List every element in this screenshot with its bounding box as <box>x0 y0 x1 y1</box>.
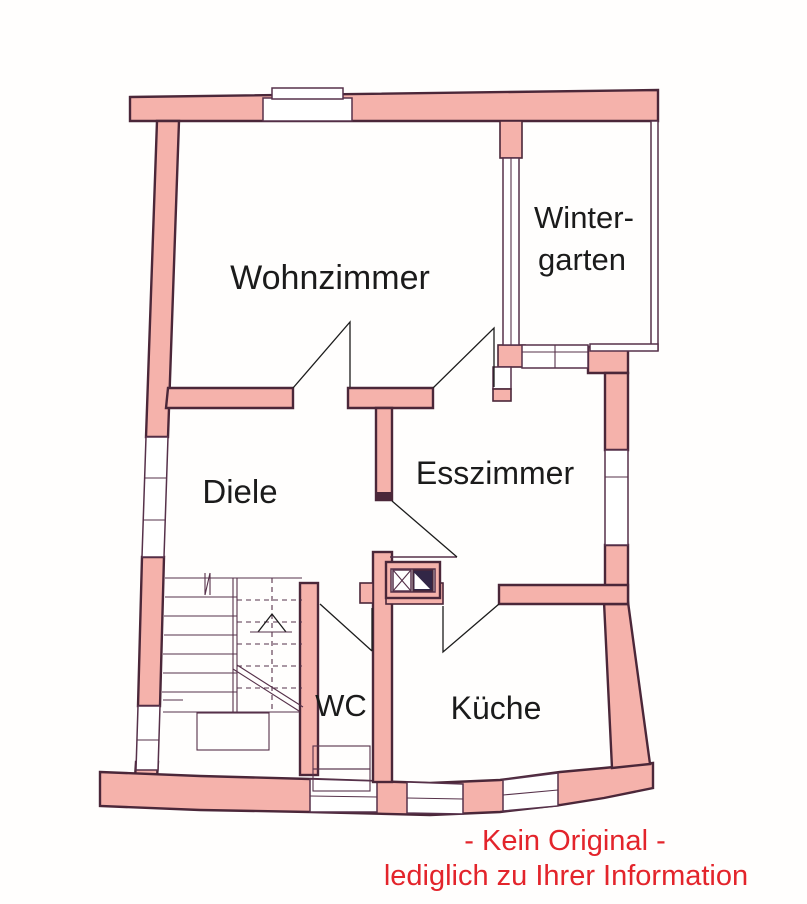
top-window-sill <box>272 88 343 99</box>
floorplan-drawing: Wohnzimmer Winter- garten Esszimmer Diel… <box>0 0 807 904</box>
kueche-north-wall <box>499 585 628 604</box>
stair-cut-line-a <box>237 665 303 707</box>
wc-label: WC <box>315 688 367 723</box>
disclaimer-line1: - Kein Original - <box>464 825 665 857</box>
wintergarten-label-line1: Winter- <box>534 200 634 235</box>
wohnzimmer-esszimmer-door <box>433 328 494 388</box>
wintergarten-south-edge <box>590 344 658 351</box>
right-exterior-wall-kueche <box>604 602 650 768</box>
wintergarten-glasswall-top-pier <box>500 121 522 158</box>
shaft <box>386 562 443 604</box>
disclaimer-line2: lediglich zu Ihrer Information <box>384 860 748 892</box>
diele-label: Diele <box>202 473 277 510</box>
left-window-1 <box>142 437 168 557</box>
top-window-outer <box>263 98 352 121</box>
windows <box>136 88 658 814</box>
wc-door-jamb-tab <box>360 583 373 603</box>
room-labels: Wohnzimmer Winter- garten Esszimmer Diel… <box>202 200 634 726</box>
diele-kueche-door <box>392 501 457 557</box>
wintergarten-east-wall <box>651 121 658 350</box>
stair-cut-line-b <box>233 669 299 711</box>
wc-step-upper <box>313 746 370 769</box>
stair-lower-landing <box>197 713 269 750</box>
wohnzimmer-label: Wohnzimmer <box>230 259 430 297</box>
wohnzimmer-south-wall-west <box>166 388 293 408</box>
stair-handrail-mark <box>205 573 210 595</box>
disclaimer: - Kein Original - lediglich zu Ihrer Inf… <box>384 825 748 892</box>
diele-esszimmer-wall-stem <box>376 408 392 500</box>
esszimmer-east-wall-mid <box>605 373 628 450</box>
left-exterior-wall-mid <box>138 557 164 706</box>
left-window-2 <box>136 706 160 770</box>
top-exterior-wall <box>130 90 658 121</box>
wc-door <box>320 604 372 651</box>
staircase <box>162 573 370 791</box>
diele-esszimmer-wall-cap <box>376 492 392 500</box>
bottom-window-1 <box>310 779 377 812</box>
wohnzimmer-south-wall-center <box>348 388 433 408</box>
wohnzimmer-diele-door <box>293 322 350 388</box>
wintergarten-label-line2: garten <box>538 242 626 277</box>
floorplan-sheet: Wohnzimmer Winter- garten Esszimmer Diel… <box>0 0 807 904</box>
kueche-door <box>443 604 499 652</box>
esszimmer-east-window <box>605 450 628 545</box>
wintergarten-glasswall-bottom-pier <box>498 345 525 367</box>
esszimmer-nw-pier-outline <box>493 367 511 389</box>
esszimmer-nw-pier <box>493 389 511 401</box>
kueche-label: Küche <box>451 690 542 726</box>
esszimmer-label: Esszimmer <box>416 455 575 491</box>
